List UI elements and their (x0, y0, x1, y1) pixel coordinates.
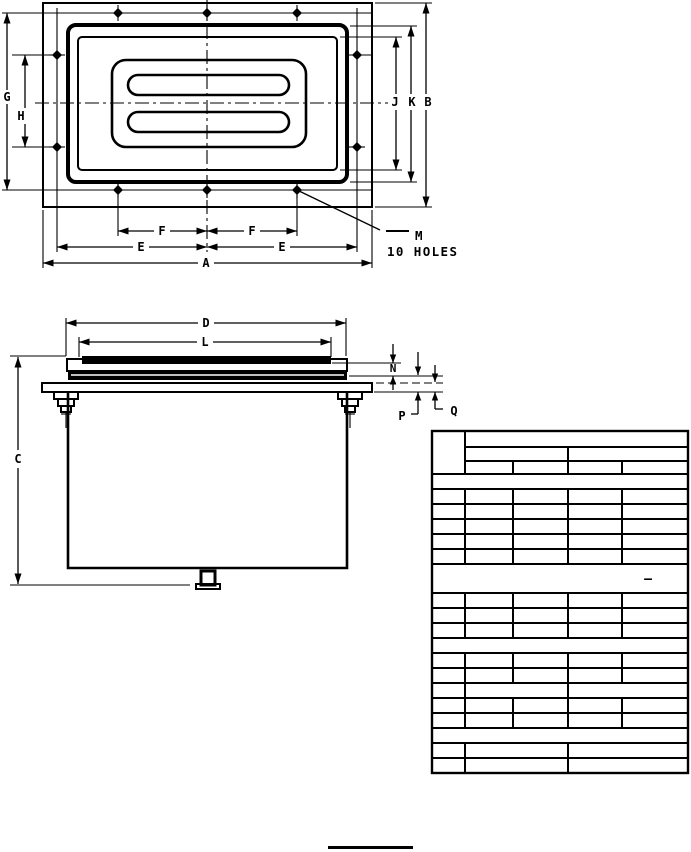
bottom-terminal (196, 571, 220, 589)
dim-label-c: C (14, 452, 21, 466)
drawing-page: G H F F E E A J K B (0, 0, 691, 852)
terminal-slot-lower (128, 112, 289, 132)
dim-label-n: N (390, 362, 397, 375)
top-view: G H F F E E A J K B (2, 0, 458, 270)
dim-label-p: P (398, 409, 405, 423)
engineering-drawing: G H F F E E A J K B (0, 0, 691, 852)
dim-label-j: J (391, 95, 398, 109)
dim-label-k: K (408, 95, 416, 109)
mounting-stud-left (54, 392, 78, 428)
dim-label-b: B (424, 95, 431, 109)
dim-label-f-right: F (248, 224, 255, 238)
table-border (432, 431, 688, 773)
dimensions-table: — (432, 431, 688, 773)
dim-label-h: H (17, 109, 24, 123)
dim-label-q: Q (450, 404, 457, 418)
figure-rule (328, 846, 413, 849)
mounting-flange (42, 383, 372, 392)
case-body (68, 392, 347, 568)
dim-label-e-left: E (137, 240, 144, 254)
table-dash: — (644, 572, 652, 587)
hole-callout-letter: M (415, 228, 424, 243)
dim-label-e-right: E (278, 240, 285, 254)
dim-label-d: D (202, 316, 209, 330)
terminal-slot-upper (128, 75, 289, 95)
cover-plate (82, 356, 331, 364)
dim-label-a: A (202, 256, 210, 270)
mounting-stud-right (338, 392, 362, 428)
hole-callout-note: 10 HOLES (387, 244, 458, 259)
dim-label-l: L (201, 335, 208, 349)
dim-label-g: G (3, 90, 10, 104)
side-view: D L C N P Q (10, 316, 458, 589)
hole-mark (113, 5, 123, 21)
hole-callout: M 10 HOLES (297, 190, 458, 259)
dim-label-f-left: F (158, 224, 165, 238)
